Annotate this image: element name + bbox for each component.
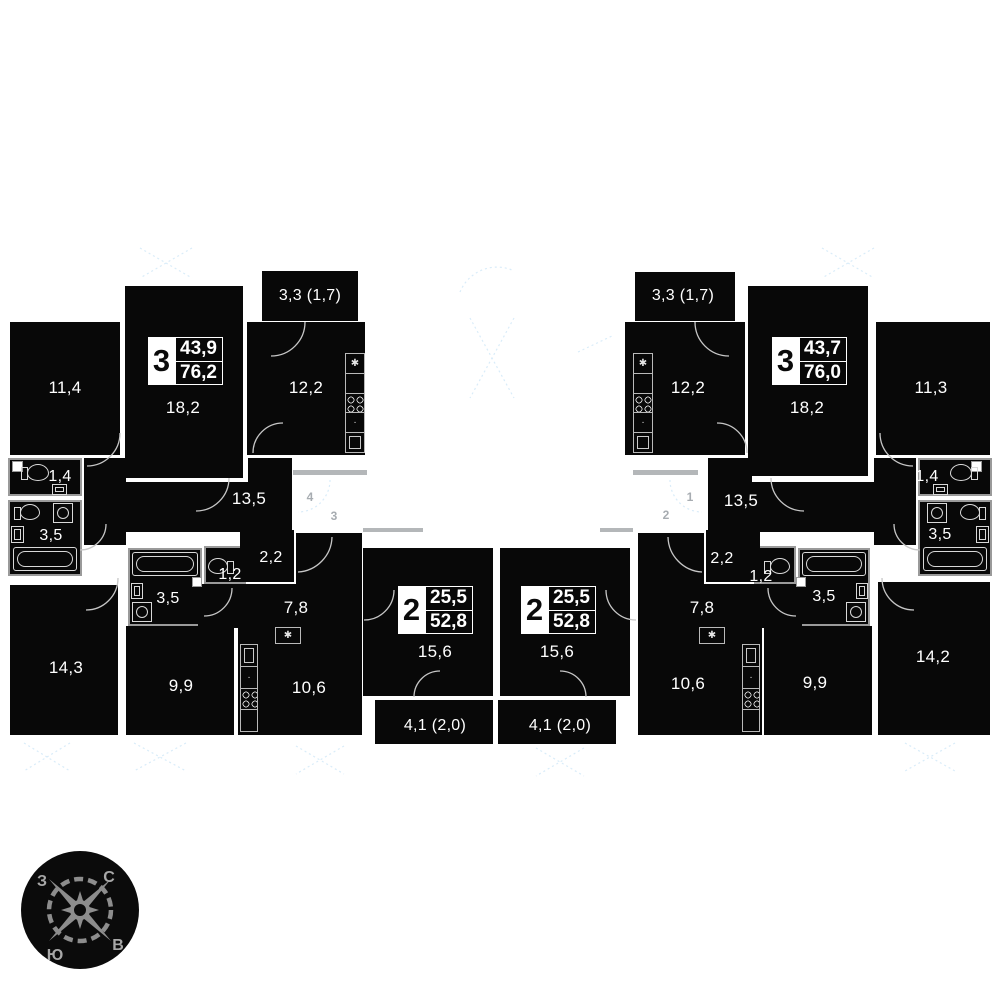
area-label: 3,5	[39, 527, 62, 545]
faint-mark	[134, 743, 186, 771]
kitchen-appliances: ✱ ·	[633, 353, 653, 453]
area-label: 3,5	[156, 590, 179, 608]
faint-door-arc	[298, 480, 330, 512]
area-label: 3,3 (1,7)	[652, 287, 714, 305]
bathtub-icon	[923, 547, 987, 571]
faint-mark	[140, 248, 192, 278]
faucet-icon: ·	[240, 667, 258, 689]
living-area: 25,5	[549, 587, 595, 610]
counter-icon	[742, 710, 760, 732]
floor-plan: 4 3 1 2 3 43,9 76,2 11,4 18,2 3,3 (1,7) …	[0, 0, 1000, 1000]
area-values: 25,5 52,8	[425, 586, 473, 634]
faint-mark	[536, 748, 584, 776]
bathtub-icon	[13, 547, 77, 571]
counter-icon	[633, 374, 653, 394]
total-area: 52,8	[549, 610, 595, 634]
area-label: 15,6	[418, 642, 452, 662]
compass-south-label: Ю	[47, 947, 64, 964]
area-label: 14,3	[49, 658, 83, 678]
compass-east-label: В	[112, 937, 124, 954]
fridge-icon	[345, 433, 365, 453]
area-label: 3,3 (1,7)	[279, 287, 341, 305]
area-label: 4,1 (2,0)	[404, 717, 466, 735]
area-label: 13,5	[724, 491, 758, 511]
vent-shaft	[192, 577, 202, 587]
area-label: 1,2	[749, 568, 772, 586]
faint-mark	[470, 318, 514, 398]
room-hall-13-5	[248, 458, 292, 484]
kitchen-sink-icon: ✱	[633, 353, 653, 374]
area-values: 43,9 76,2	[175, 337, 223, 385]
total-area: 52,8	[426, 610, 472, 634]
stove-icon	[345, 394, 365, 414]
area-label: 3,5	[812, 588, 835, 606]
corridor-wall	[363, 528, 423, 532]
area-label: 2,2	[259, 549, 282, 567]
sink-icon	[976, 526, 989, 543]
sink-icon	[131, 583, 143, 599]
rooms-count: 3	[148, 337, 175, 385]
toilet-icon	[950, 464, 972, 481]
total-area: 76,2	[176, 361, 222, 385]
room-hall-entry	[296, 533, 362, 588]
faint-mark	[822, 248, 874, 278]
apartment-badge: 2 25,5 52,8	[398, 586, 473, 634]
area-label: 10,6	[292, 678, 326, 698]
area-label: 15,6	[540, 642, 574, 662]
flat-number-mark: 3	[331, 509, 338, 523]
area-label: 3,5	[928, 526, 951, 544]
area-label: 11,4	[48, 378, 81, 398]
area-values: 25,5 52,8	[548, 586, 596, 634]
apartment-badge: 3 43,9 76,2	[148, 337, 223, 385]
fridge-icon	[742, 644, 760, 667]
faint-mark	[296, 746, 344, 774]
corridor-wall	[293, 470, 367, 475]
sink-icon	[11, 526, 24, 543]
living-area: 43,9	[176, 338, 222, 361]
area-label: 1,2	[218, 566, 241, 584]
apartment-badge: 2 25,5 52,8	[521, 586, 596, 634]
area-label: 14,2	[916, 647, 950, 667]
flat-number-mark: 1	[687, 490, 694, 504]
room-hall-13-5	[708, 458, 752, 484]
kitchen-appliances: ·	[240, 644, 258, 732]
kitchen-sink-icon: ✱	[275, 627, 301, 644]
faucet-icon: ·	[742, 667, 760, 689]
faint-mark	[460, 267, 512, 292]
sink-icon	[856, 583, 868, 599]
rooms-count: 2	[398, 586, 425, 634]
area-label: 9,9	[803, 673, 828, 693]
flat-number-mark: 4	[307, 490, 314, 504]
faint-mark	[578, 336, 612, 352]
compass-west-label: З	[37, 873, 47, 890]
faucet-icon: ·	[345, 413, 365, 433]
toilet-icon	[960, 504, 980, 520]
toilet-icon	[770, 558, 790, 574]
counter-icon	[240, 710, 258, 732]
stove-icon	[742, 689, 760, 711]
kitchen-appliances: ·	[742, 644, 760, 732]
rooms-count: 2	[521, 586, 548, 634]
stove-icon	[633, 394, 653, 414]
stove-icon	[240, 689, 258, 711]
kitchen-sink-icon: ✱	[345, 353, 365, 374]
bathtub-icon	[132, 552, 198, 576]
living-area: 25,5	[426, 587, 472, 610]
area-label: 18,2	[166, 398, 200, 418]
area-label: 12,2	[671, 378, 705, 398]
toilet-icon	[20, 504, 40, 520]
living-area: 43,7	[800, 338, 846, 361]
corridor-wall	[633, 470, 698, 475]
area-label: 1,4	[48, 468, 71, 486]
area-label: 10,6	[671, 674, 705, 694]
vent-shaft	[796, 577, 806, 587]
washing-machine-icon	[927, 503, 947, 523]
area-label: 18,2	[790, 398, 824, 418]
fridge-icon	[240, 644, 258, 667]
area-label: 7,8	[284, 598, 309, 618]
faucet-icon: ·	[633, 413, 653, 433]
room-hall-entry	[638, 533, 704, 588]
bathtub-icon	[802, 552, 866, 576]
faint-mark	[24, 743, 70, 771]
apartment-badge: 3 43,7 76,0	[772, 337, 847, 385]
kitchen-appliances: ✱ ·	[345, 353, 365, 453]
washing-machine-icon	[53, 503, 73, 523]
area-label: 13,5	[232, 489, 266, 509]
washing-machine-icon	[846, 602, 866, 622]
fridge-icon	[633, 433, 653, 453]
washing-machine-icon	[132, 602, 152, 622]
area-label: 9,9	[169, 676, 194, 696]
area-label: 7,8	[690, 598, 715, 618]
rooms-count: 3	[772, 337, 799, 385]
compass-north-label: С	[103, 869, 115, 886]
area-label: 11,3	[914, 378, 947, 398]
flat-number-mark: 2	[663, 508, 670, 522]
compass-hub	[72, 902, 88, 918]
kitchen-sink-icon: ✱	[699, 627, 725, 644]
counter-icon	[345, 374, 365, 394]
area-label: 2,2	[710, 550, 733, 568]
total-area: 76,0	[800, 361, 846, 385]
toilet-icon	[27, 464, 49, 481]
area-label: 12,2	[289, 378, 323, 398]
faint-mark	[905, 743, 955, 771]
compass-rose: З С Ю В	[12, 842, 148, 978]
area-label: 4,1 (2,0)	[529, 717, 591, 735]
corridor-wall	[600, 528, 633, 532]
area-values: 43,7 76,0	[799, 337, 847, 385]
area-label: 1,4	[915, 468, 938, 486]
